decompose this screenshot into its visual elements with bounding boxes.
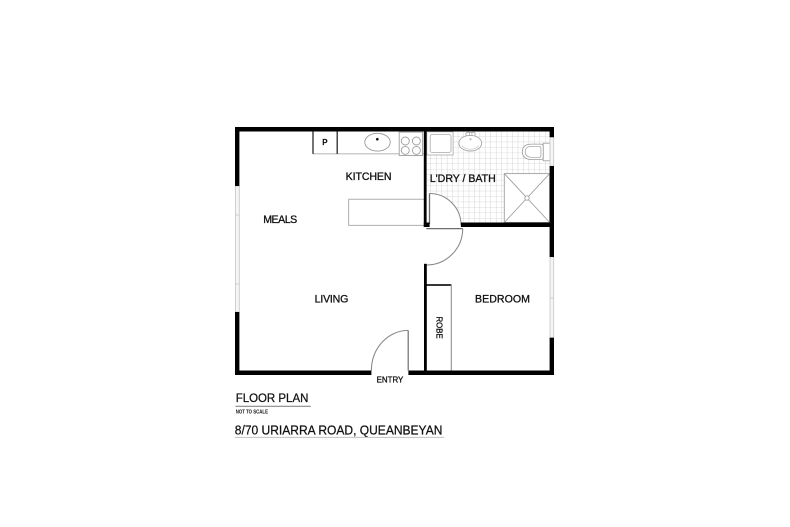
- svg-text:8/70 URIARRA ROAD, QUEANBEYAN: 8/70 URIARRA ROAD, QUEANBEYAN: [235, 423, 443, 438]
- svg-text:MEALS: MEALS: [263, 214, 297, 226]
- svg-text:ROBE: ROBE: [434, 317, 443, 340]
- svg-text:LIVING: LIVING: [315, 293, 349, 305]
- svg-text:NOT TO SCALE: NOT TO SCALE: [236, 410, 268, 416]
- svg-text:L'DRY / BATH: L'DRY / BATH: [430, 173, 496, 185]
- svg-text:KITCHEN: KITCHEN: [346, 171, 392, 183]
- svg-text:P: P: [322, 138, 328, 147]
- svg-text:ENTRY: ENTRY: [377, 375, 404, 384]
- svg-text:FLOOR PLAN: FLOOR PLAN: [236, 393, 309, 405]
- svg-text:BEDROOM: BEDROOM: [475, 293, 530, 305]
